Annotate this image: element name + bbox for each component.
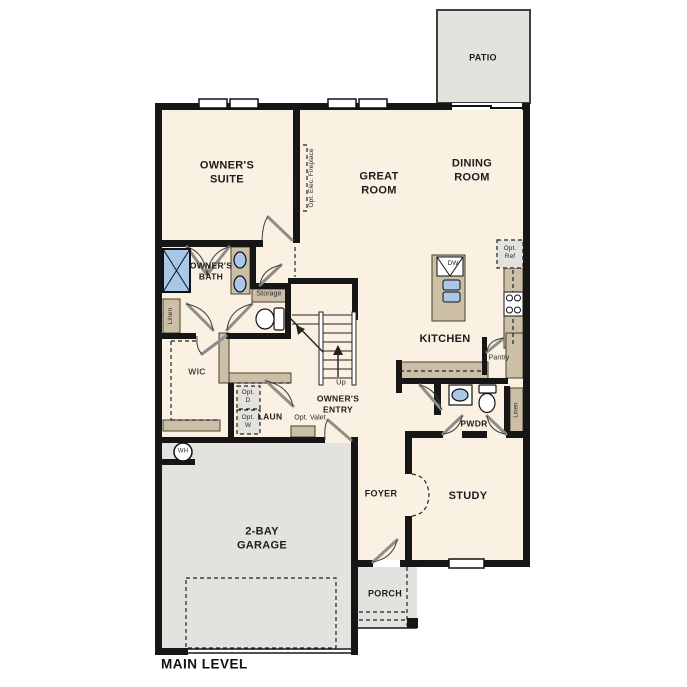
room-label-porch: PORCH	[368, 588, 402, 599]
annotation-opt-dryer: Opt. D	[242, 389, 255, 405]
room-label-owners-entry: OWNER'S ENTRY	[317, 393, 359, 414]
room-label-study: STUDY	[449, 490, 488, 504]
room-label-powder: PWDR	[460, 419, 487, 430]
annotation-opt-valet: Opt. Valet	[294, 415, 326, 424]
labels: PATIO OWNER'S SUITE GREAT ROOM DINING RO…	[0, 0, 687, 687]
annotation-linen-left: Linen	[167, 308, 175, 324]
room-label-kitchen: KITCHEN	[420, 333, 471, 347]
annotation-water-heater: WH	[178, 448, 188, 456]
room-label-great-room: GREAT ROOM	[359, 170, 398, 198]
room-label-wic: WIC	[188, 367, 205, 378]
room-label-garage: 2-BAY GARAGE	[237, 525, 287, 553]
room-label-dining-room: DINING ROOM	[452, 157, 492, 185]
floor-plan: PATIO OWNER'S SUITE GREAT ROOM DINING RO…	[0, 0, 687, 687]
room-label-owners-bath: OWNER'S BATH	[190, 260, 232, 281]
annotation-opt-washer: Opt. W	[242, 414, 255, 430]
annotation-opt-fireplace: Opt. Elec. Fireplace	[308, 148, 316, 207]
room-label-owners-suite: OWNER'S SUITE	[200, 159, 254, 187]
annotation-opt-refrigerator: Opt. Ref	[504, 245, 517, 261]
annotation-storage: Storage	[256, 291, 281, 300]
room-label-pantry: Pantry	[489, 355, 510, 364]
annotation-up: Up	[336, 377, 346, 386]
annotation-linen-right: Linen	[513, 402, 521, 417]
room-label-patio: PATIO	[469, 52, 497, 63]
room-label-laundry: LAUN	[258, 412, 283, 423]
room-label-foyer: FOYER	[365, 488, 398, 499]
plan-title: MAIN LEVEL	[161, 657, 248, 672]
annotation-dishwasher: DW	[447, 260, 458, 268]
